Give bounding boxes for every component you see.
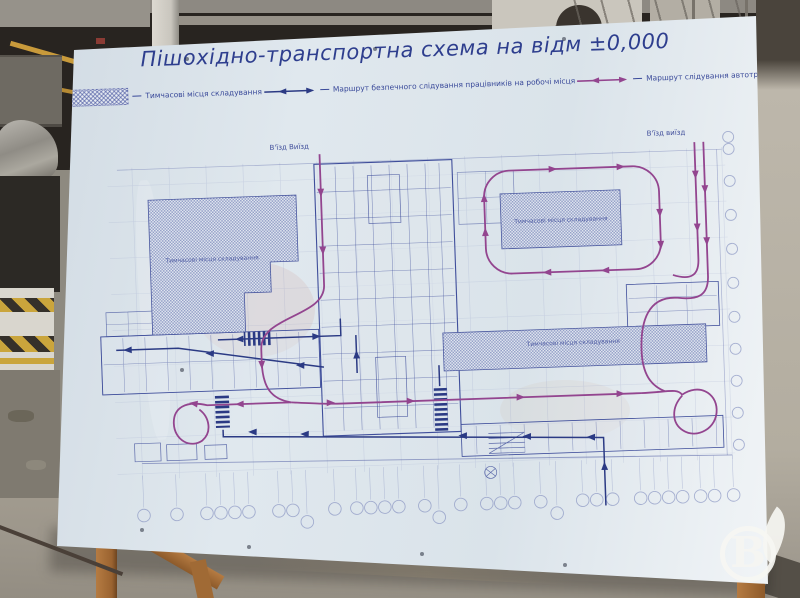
concrete-wall-left bbox=[0, 55, 62, 127]
striped-safety-barrier bbox=[0, 288, 54, 370]
site-plan: Тимчасові місця складування Тимчасові мі… bbox=[76, 123, 750, 558]
legend-label: Маршрут безпечного слідування працівникі… bbox=[333, 76, 576, 93]
site-plan-drawing: Тимчасові місця складування Тимчасові мі… bbox=[76, 123, 750, 558]
schematic-board: Пішохідно-транспортна схема на відм ±0,0… bbox=[0, 0, 800, 598]
rock bbox=[26, 460, 46, 470]
storage-area-1: Тимчасові місця складування bbox=[148, 195, 301, 335]
mounting-screw bbox=[185, 57, 189, 61]
legend-row: Тимчасові місця складування Маршрут безп… bbox=[56, 66, 756, 107]
legend-dash bbox=[132, 95, 141, 96]
mounting-screw bbox=[373, 47, 377, 51]
hazard-stripe bbox=[0, 358, 54, 364]
mounting-screw bbox=[180, 368, 184, 372]
shadow-area bbox=[0, 176, 60, 292]
mounting-screw bbox=[420, 552, 424, 556]
hazard-stripe bbox=[0, 298, 54, 312]
rock bbox=[8, 410, 34, 422]
legend-dash bbox=[320, 89, 329, 90]
mounting-screw bbox=[140, 528, 144, 532]
legend-item-storage: Тимчасові місця складування bbox=[70, 83, 262, 107]
vehicle-route-arrow-icon bbox=[575, 74, 629, 86]
entry-label-right: В'їзд виїзд bbox=[647, 128, 686, 137]
mounting-screw bbox=[562, 37, 566, 41]
storage-area-2: Тимчасові місця складування bbox=[500, 190, 622, 249]
axis-bubbles-right bbox=[722, 131, 744, 450]
board-content: Пішохідно-транспортна схема на відм ±0,0… bbox=[54, 18, 773, 590]
red-equipment bbox=[96, 38, 105, 44]
legend-label: Тимчасові місця складування bbox=[145, 87, 262, 100]
watermark-letter: B bbox=[720, 524, 776, 580]
watermark-logo: B bbox=[712, 510, 800, 598]
pedestrian-crossing-c bbox=[434, 386, 449, 432]
ceiling-slab-left bbox=[0, 0, 150, 27]
legend-dash bbox=[633, 78, 642, 79]
building-core bbox=[314, 157, 522, 436]
mounting-screw bbox=[563, 563, 567, 567]
hazard-stripe bbox=[0, 336, 54, 352]
entry-label-center: В'їзд Виїзд bbox=[269, 143, 309, 152]
construction-site-photo: Пішохідно-транспортна схема на відм ±0,0… bbox=[0, 0, 800, 598]
legend-item-worker-route: Маршрут безпечного слідування працівникі… bbox=[262, 76, 576, 97]
worker-route-arrow-icon bbox=[262, 85, 316, 97]
pedestrian-crossing-b bbox=[215, 394, 230, 428]
storage-area-3: Тимчасові місця складування bbox=[443, 324, 707, 371]
mounting-screw bbox=[247, 545, 251, 549]
storage-hatch-icon bbox=[70, 88, 129, 107]
